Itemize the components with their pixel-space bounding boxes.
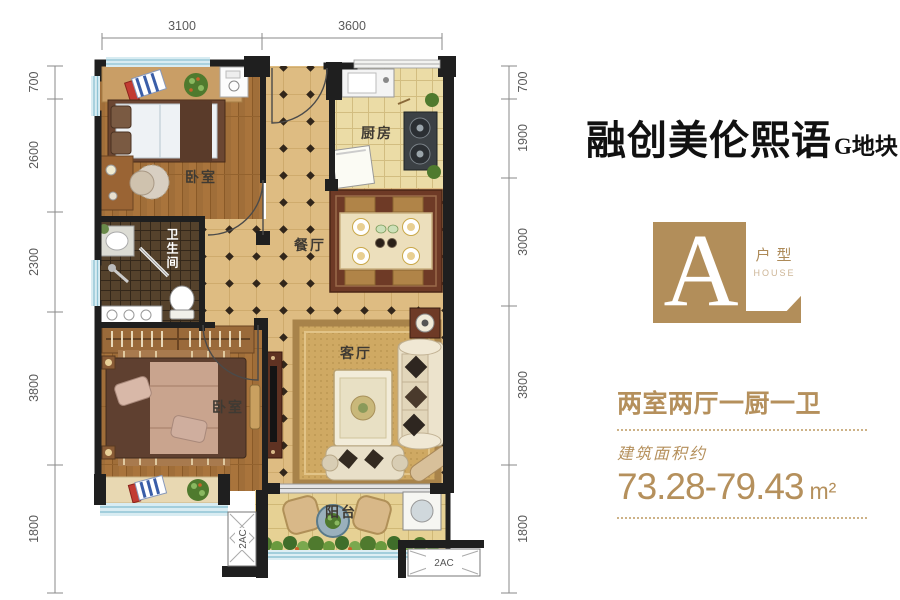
dim-right-4: 1800: [516, 515, 530, 543]
dim-right-0: 700: [516, 72, 530, 93]
area-label: 建筑面积约: [617, 440, 867, 464]
dim-left-2: 2300: [27, 248, 41, 276]
area-unit: m²: [810, 478, 837, 504]
wash-sink: [99, 224, 134, 256]
window-glass: [100, 503, 228, 516]
divider: [617, 429, 867, 431]
bedroom-bottom-furniture: [102, 326, 260, 466]
sink: [342, 69, 394, 97]
bench: [250, 385, 260, 429]
dim-right-2: 3000: [516, 228, 530, 256]
project-block: G地块: [834, 134, 898, 159]
loveseat: [322, 446, 408, 480]
vanity-counter: [100, 306, 162, 324]
dim-right-1: 1900: [516, 124, 530, 152]
label-bathroom: 卫生间: [165, 228, 179, 270]
bed: [108, 100, 225, 162]
bay-window: [100, 475, 228, 516]
coffee-table: [334, 370, 392, 446]
sofa: [398, 339, 444, 449]
unit-type-label: 户型: [746, 244, 801, 265]
dim-left-3: 3800: [27, 374, 41, 402]
poster: 2AC 2AC 卧室 厨房 餐厅 客厅 卧室 阳台 卫生间 3100 3600: [0, 0, 900, 600]
room-count: 两室两厅一厨一卫: [617, 384, 867, 420]
deco-stand: [410, 308, 440, 338]
dim-left-1: 2600: [27, 141, 41, 169]
unit-type-label-en: HOUSE: [746, 268, 801, 278]
toilet: [170, 286, 194, 319]
label-bedroom-top: 卧室: [185, 169, 217, 185]
ac-label-left: 2AC: [238, 529, 249, 548]
plant: [184, 73, 208, 97]
label-balcony: 阳台: [325, 504, 357, 520]
wardrobe: [102, 326, 254, 353]
plant: [187, 479, 209, 501]
unit-info: 两室两厅一厨一卫 建筑面积约 73.28-79.43m²: [617, 384, 867, 519]
dining-set: [330, 190, 442, 292]
project-name: 融创美伦熙语: [586, 118, 832, 163]
label-kitchen: 厨房: [361, 125, 393, 141]
area-line: 73.28-79.43m²: [617, 466, 867, 508]
floor-plan: 2AC 2AC 卧室 厨房 餐厅 客厅 卧室 阳台 卫生间 3100 3600: [0, 0, 570, 600]
area-value: 73.28-79.43: [617, 466, 804, 507]
label-living: 客厅: [339, 345, 372, 361]
ac-label-bottom: 2AC: [434, 558, 453, 569]
stove: [404, 112, 437, 170]
label-bedroom-bottom: 卧室: [212, 399, 244, 415]
project-title: 融创美伦熙语G地块: [586, 108, 896, 166]
ac-platform-left: 2AC: [228, 512, 256, 566]
plant: [427, 165, 441, 179]
unit-type-letter: A: [653, 216, 749, 317]
dim-left-0: 700: [27, 72, 41, 93]
ac-platform-bottom: 2AC: [408, 549, 480, 576]
dim-right-3: 3800: [516, 371, 530, 399]
plant: [425, 93, 439, 107]
living-room-furniture: [264, 308, 456, 484]
dim-top-0: 3100: [168, 19, 196, 33]
dim-top-1: 3600: [338, 19, 366, 33]
unit-type-panel: 户型 HOUSE: [746, 222, 801, 311]
unit-type-badge: A 户型 HOUSE: [653, 222, 801, 323]
washing-machine: [403, 492, 441, 530]
label-dining: 餐厅: [293, 237, 326, 253]
cabinet: [220, 67, 248, 97]
divider: [617, 517, 867, 519]
dim-left-4: 1800: [27, 515, 41, 543]
